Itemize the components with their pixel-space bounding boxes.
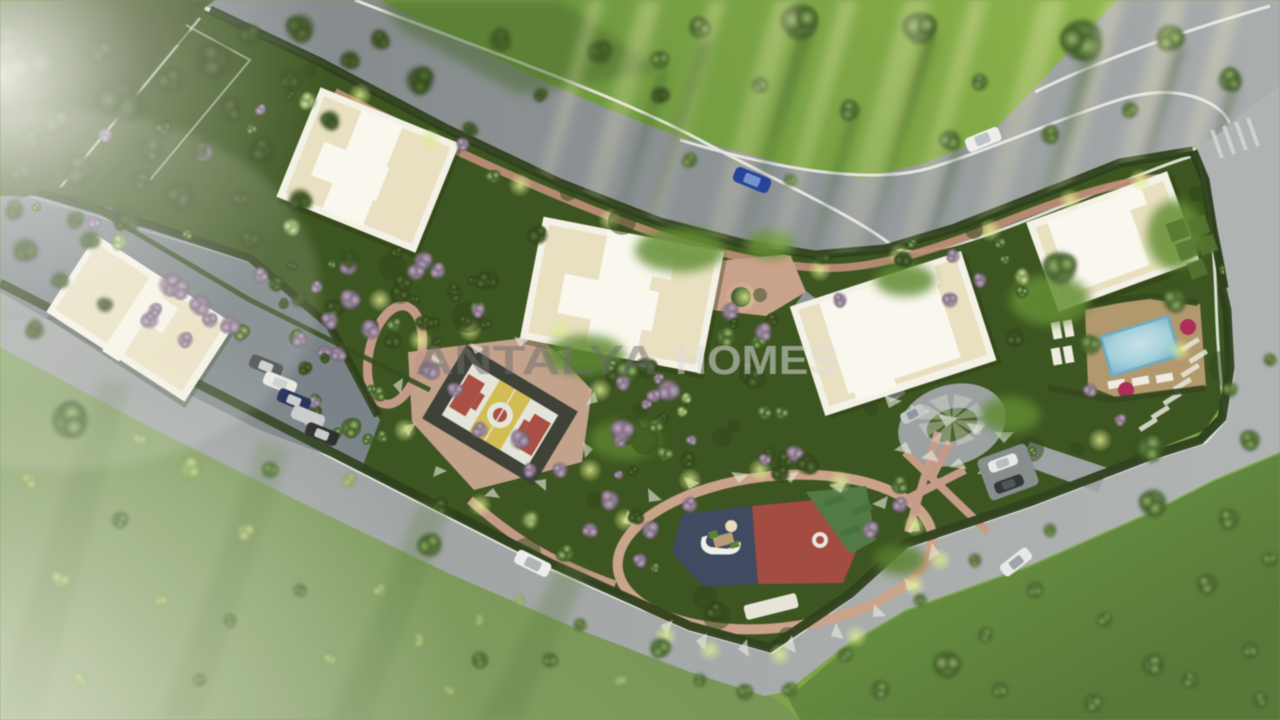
svg-text:ANTALYA: ANTALYA xyxy=(415,337,658,383)
svg-text:HOMES: HOMES xyxy=(675,337,838,383)
